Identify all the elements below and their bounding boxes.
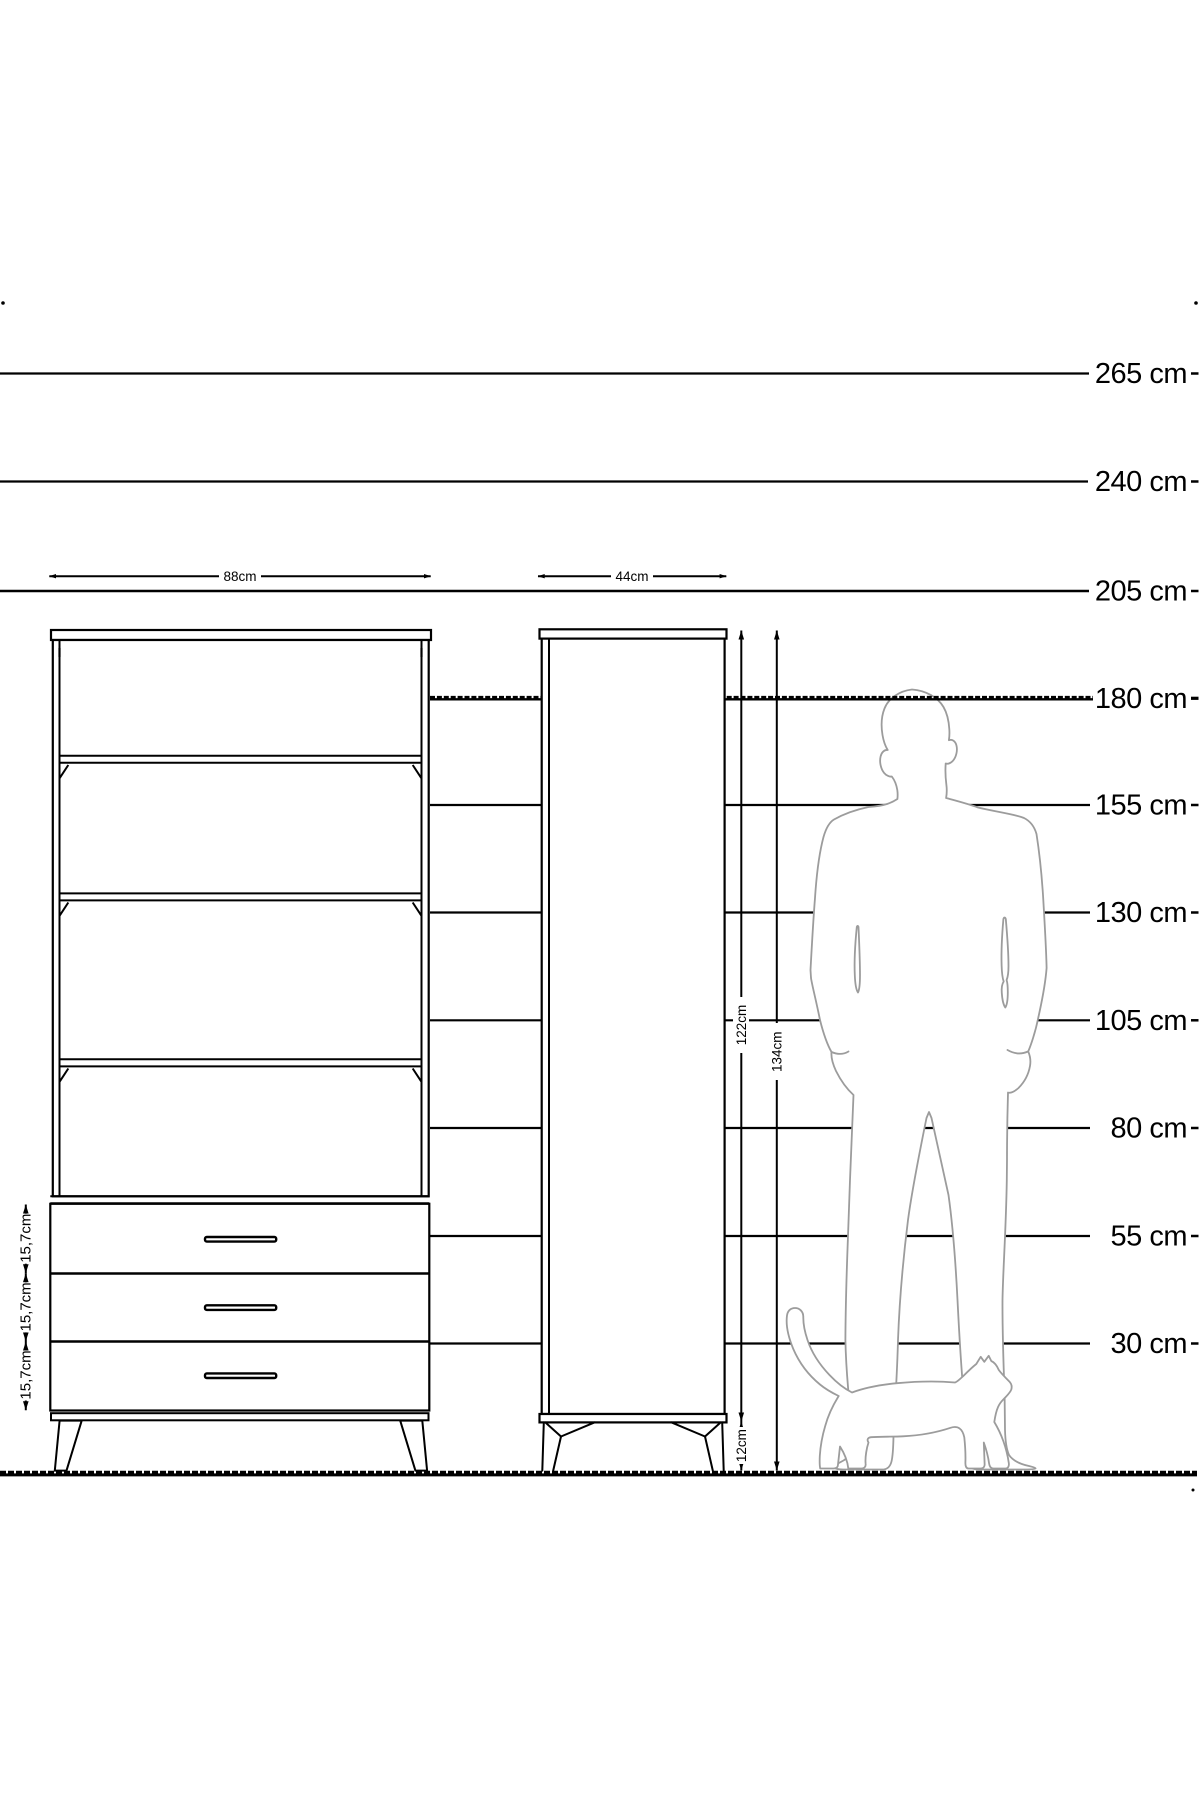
svg-text:44cm: 44cm [615, 569, 648, 584]
svg-text:15,7cm: 15,7cm [18, 1350, 35, 1399]
svg-text:155 cm: 155 cm [1095, 790, 1187, 822]
svg-text:105 cm: 105 cm [1095, 1005, 1187, 1037]
svg-text:55 cm: 55 cm [1111, 1221, 1187, 1253]
svg-text:80 cm: 80 cm [1111, 1113, 1187, 1145]
svg-text:12cm: 12cm [734, 1429, 749, 1462]
svg-text:180 cm: 180 cm [1095, 683, 1187, 715]
svg-text:240 cm: 240 cm [1095, 466, 1187, 498]
svg-text:130 cm: 130 cm [1095, 897, 1187, 929]
svg-text:122cm: 122cm [734, 1005, 749, 1046]
svg-text:134cm: 134cm [770, 1031, 785, 1072]
svg-text:15,7cm: 15,7cm [18, 1282, 35, 1331]
svg-text:15,7cm: 15,7cm [18, 1214, 35, 1263]
svg-text:205 cm: 205 cm [1095, 576, 1187, 608]
svg-text:265 cm: 265 cm [1095, 358, 1187, 390]
svg-text:88cm: 88cm [223, 569, 256, 584]
svg-text:30 cm: 30 cm [1111, 1328, 1187, 1360]
